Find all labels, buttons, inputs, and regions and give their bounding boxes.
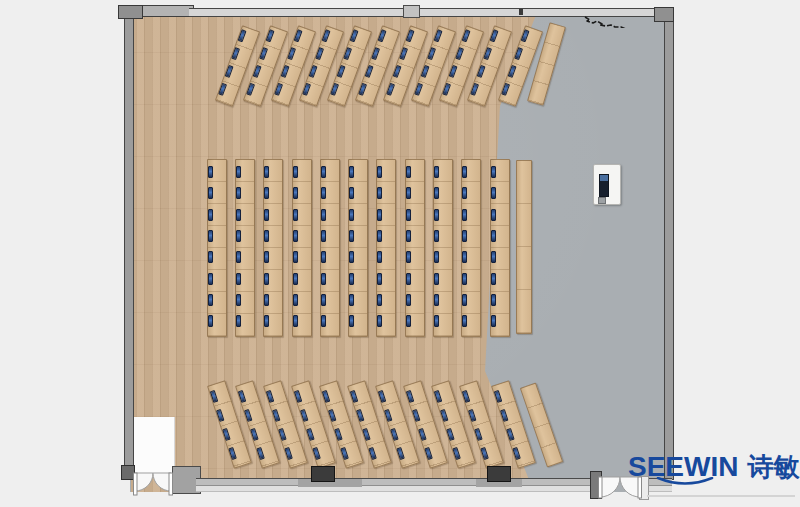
seat-marker	[274, 82, 283, 95]
seat-marker	[225, 65, 234, 78]
seat-marker	[349, 187, 354, 199]
seat-marker	[434, 273, 439, 285]
seat-marker	[264, 315, 269, 327]
seat-marker	[321, 230, 326, 242]
floor-plan-canvas: SEEWIN 诗敏	[0, 0, 800, 507]
seat-marker	[508, 65, 517, 78]
seat-marker	[377, 294, 382, 306]
seat-marker	[377, 187, 382, 199]
seat-marker	[358, 82, 367, 95]
seat-marker	[434, 294, 439, 306]
seat-marker	[236, 294, 241, 306]
annotation-scribble	[582, 12, 654, 28]
seat-marker	[343, 47, 352, 60]
seat-marker	[462, 187, 467, 199]
brand-logo-chinese: 诗敏	[747, 450, 799, 485]
desk-row	[433, 159, 453, 337]
wall-right	[664, 8, 674, 480]
structural-column	[487, 466, 511, 482]
seat-marker	[293, 166, 298, 178]
seat-marker	[521, 29, 530, 42]
seat-marker	[208, 273, 213, 285]
seat-marker	[406, 294, 411, 306]
seat-marker	[293, 209, 298, 221]
seat-marker	[264, 273, 269, 285]
seat-marker	[294, 29, 303, 42]
seat-marker	[455, 47, 464, 60]
seat-marker	[321, 209, 326, 221]
seat-marker	[321, 166, 326, 178]
seat-marker	[462, 251, 467, 263]
seat-marker	[349, 209, 354, 221]
seat-marker	[349, 315, 354, 327]
side-table	[516, 160, 532, 334]
seat-marker	[434, 209, 439, 221]
seat-marker	[349, 294, 354, 306]
seat-marker	[208, 251, 213, 263]
seat-marker	[462, 315, 467, 327]
seat-marker	[434, 187, 439, 199]
seat-marker	[470, 82, 479, 95]
seat-marker	[434, 166, 439, 178]
desk-row	[235, 159, 255, 337]
seat-marker	[377, 273, 382, 285]
seat-marker	[406, 230, 411, 242]
seat-marker	[490, 29, 499, 42]
seat-marker	[393, 65, 402, 78]
seat-marker	[462, 29, 471, 42]
seat-marker	[462, 273, 467, 285]
seat-marker	[264, 209, 269, 221]
seat-marker	[491, 251, 496, 263]
seat-marker	[253, 65, 262, 78]
seat-marker	[264, 294, 269, 306]
seat-marker	[246, 82, 255, 95]
desk-row	[207, 159, 227, 337]
seat-marker	[421, 65, 430, 78]
desk-row	[405, 159, 425, 337]
seat-marker	[434, 251, 439, 263]
podium	[593, 164, 621, 205]
seat-marker	[434, 29, 443, 42]
seat-marker	[406, 209, 411, 221]
seat-marker	[406, 251, 411, 263]
seat-marker	[208, 166, 213, 178]
seat-marker	[208, 209, 213, 221]
seat-marker	[287, 47, 296, 60]
seat-marker	[309, 65, 318, 78]
seat-marker	[266, 29, 275, 42]
seat-marker	[330, 82, 339, 95]
seat-marker	[477, 65, 486, 78]
seat-marker	[337, 65, 346, 78]
seat-marker	[321, 273, 326, 285]
seat-marker	[349, 230, 354, 242]
podium-screen	[599, 174, 609, 197]
seat-marker	[378, 29, 387, 42]
seat-marker	[259, 47, 268, 60]
seat-marker	[349, 273, 354, 285]
seat-marker	[491, 294, 496, 306]
seat-marker	[236, 273, 241, 285]
seat-marker	[208, 315, 213, 327]
seat-marker	[406, 29, 415, 42]
seat-marker	[406, 273, 411, 285]
seat-marker	[350, 29, 359, 42]
seat-marker	[406, 166, 411, 178]
podium-base	[598, 197, 606, 204]
seat-marker	[377, 209, 382, 221]
seat-marker	[491, 315, 496, 327]
seat-marker	[414, 82, 423, 95]
desk-row	[292, 159, 312, 337]
seat-marker	[236, 230, 241, 242]
seat-marker	[281, 65, 290, 78]
seat-marker	[236, 187, 241, 199]
seat-marker	[406, 187, 411, 199]
seat-marker	[491, 273, 496, 285]
seat-marker	[293, 251, 298, 263]
wall-joint-tick	[519, 9, 523, 15]
seat-marker	[293, 315, 298, 327]
seat-marker	[449, 65, 458, 78]
door-bottom-left	[118, 464, 204, 507]
seat-marker	[293, 294, 298, 306]
seat-marker	[491, 166, 496, 178]
seat-marker	[377, 166, 382, 178]
desk-row	[461, 159, 481, 337]
seat-marker	[231, 47, 240, 60]
seat-marker	[483, 47, 492, 60]
logo-swoosh-icon	[656, 477, 714, 489]
wall-corner-top-left	[118, 5, 143, 19]
seat-marker	[442, 82, 451, 95]
seat-marker	[462, 166, 467, 178]
seat-marker	[491, 230, 496, 242]
seat-marker	[434, 315, 439, 327]
seat-marker	[218, 82, 227, 95]
seat-marker	[371, 47, 380, 60]
desk-row	[490, 159, 510, 337]
desk-row	[320, 159, 340, 337]
seat-marker	[236, 251, 241, 263]
seat-marker	[377, 230, 382, 242]
seat-marker	[208, 294, 213, 306]
seat-marker	[406, 315, 411, 327]
seat-marker	[208, 187, 213, 199]
seat-marker	[491, 209, 496, 221]
seat-marker	[377, 315, 382, 327]
seat-marker	[386, 82, 395, 95]
seat-marker	[349, 251, 354, 263]
seat-marker	[236, 209, 241, 221]
seat-marker	[321, 251, 326, 263]
seat-marker	[264, 230, 269, 242]
seat-marker	[462, 209, 467, 221]
seat-marker	[365, 65, 374, 78]
desk-row	[376, 159, 396, 337]
seat-marker	[293, 273, 298, 285]
wall-bottom-window-band	[196, 478, 592, 492]
wall-left	[124, 8, 134, 476]
seat-marker	[236, 166, 241, 178]
desk-row	[348, 159, 368, 337]
seat-marker	[264, 187, 269, 199]
desk-row	[263, 159, 283, 337]
structural-column	[311, 466, 335, 482]
seat-marker	[501, 82, 510, 95]
seat-marker	[377, 251, 382, 263]
seat-marker	[264, 166, 269, 178]
seat-marker	[293, 230, 298, 242]
seat-marker	[349, 166, 354, 178]
seat-marker	[238, 29, 247, 42]
seat-marker	[399, 47, 408, 60]
seat-marker	[208, 230, 213, 242]
seat-marker	[491, 187, 496, 199]
seat-marker	[236, 315, 241, 327]
seat-marker	[462, 230, 467, 242]
seat-marker	[434, 230, 439, 242]
seat-marker	[315, 47, 324, 60]
seat-marker	[321, 315, 326, 327]
seat-marker	[321, 294, 326, 306]
seat-marker	[462, 294, 467, 306]
exterior-ground-line	[647, 495, 795, 497]
seat-marker	[322, 29, 331, 42]
wall-corner-top-right	[654, 7, 674, 22]
wall-window-marker	[403, 5, 420, 18]
seat-marker	[514, 47, 523, 60]
seat-marker	[302, 82, 311, 95]
seat-marker	[427, 47, 436, 60]
seat-marker	[264, 251, 269, 263]
seat-marker	[321, 187, 326, 199]
seat-marker	[293, 187, 298, 199]
